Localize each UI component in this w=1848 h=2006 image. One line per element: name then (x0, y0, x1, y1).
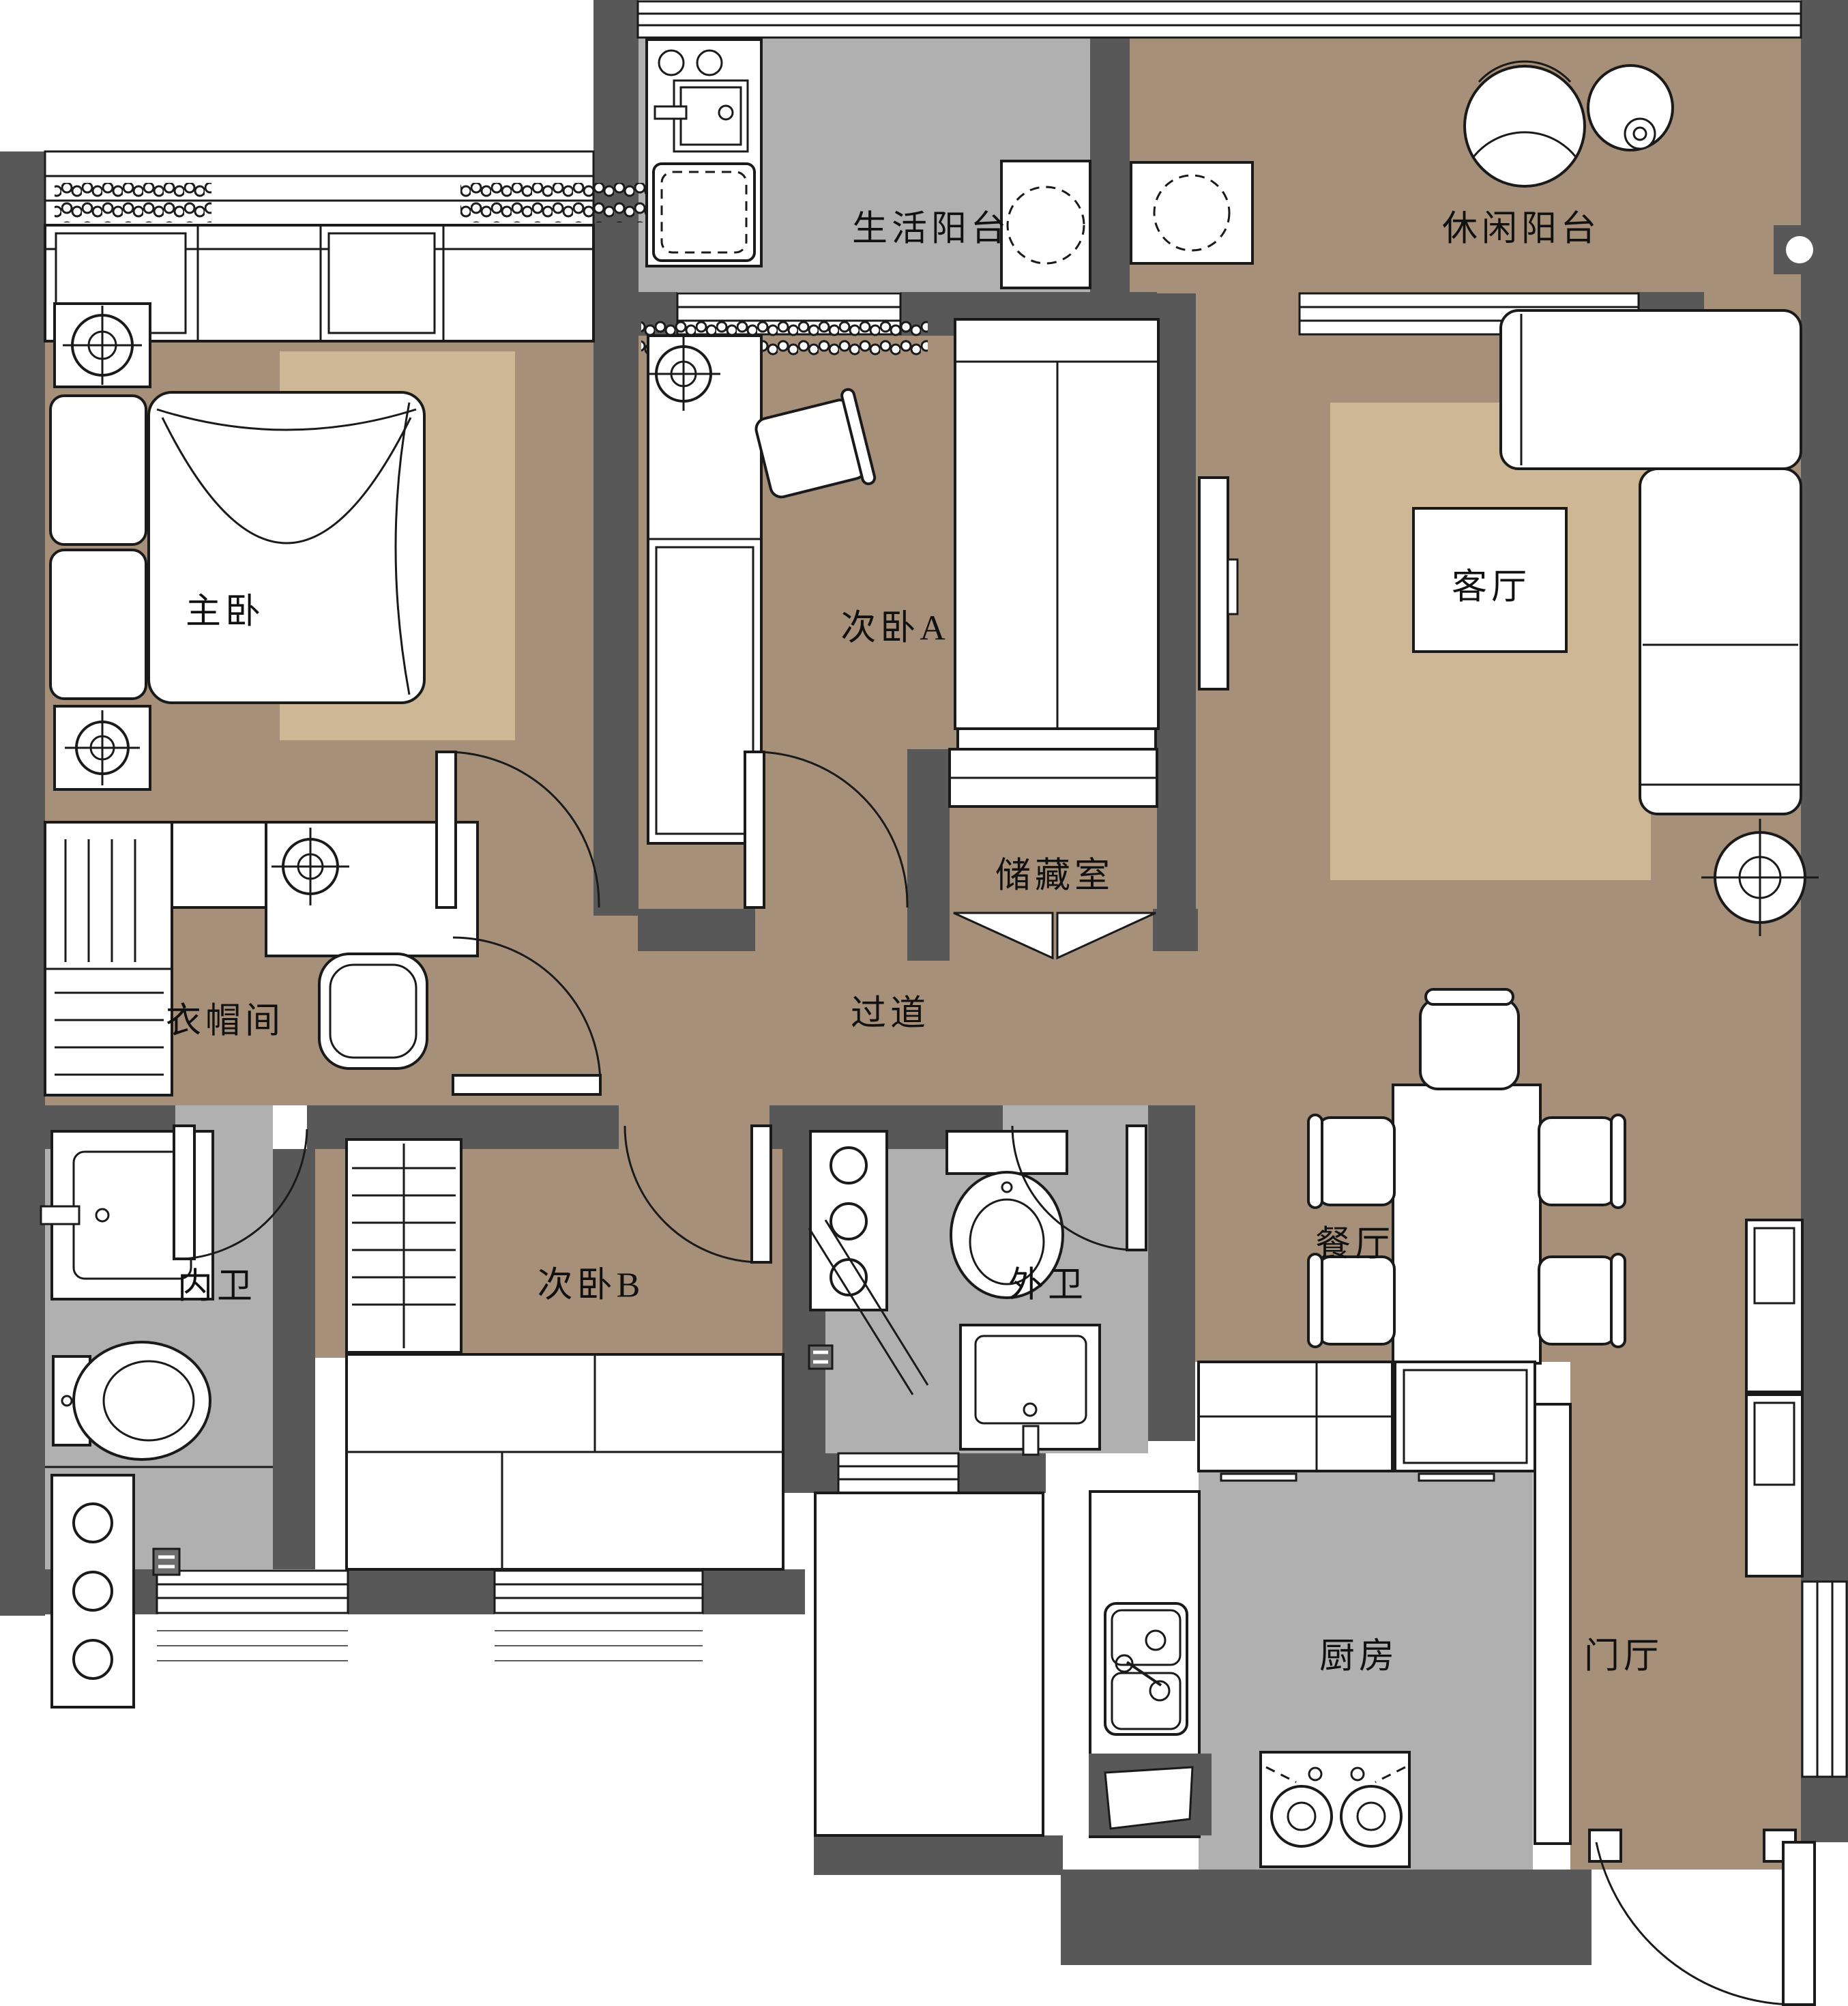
dining-chair (1420, 989, 1519, 1089)
bedroom-b-furniture (347, 1139, 783, 1569)
room-label-living-room: 客厅 (1452, 558, 1531, 609)
cloakroom-furniture (45, 822, 478, 1095)
dining-chair (1539, 1115, 1625, 1208)
master-bedroom-furniture (45, 183, 689, 789)
dining-chair (1539, 1254, 1625, 1347)
bed-master (50, 392, 424, 703)
sliding-panel (1535, 1404, 1570, 1844)
window-balcony-top (638, 1, 1801, 38)
tv-cabinet (1199, 478, 1237, 689)
desk-chair (752, 388, 876, 508)
nightstand (55, 706, 150, 789)
wardrobe-cloakroom (45, 822, 172, 1095)
bed-bedroom-a (955, 319, 1158, 796)
door-cloakroom (453, 937, 600, 1094)
toilet-icon (53, 1342, 210, 1459)
room-label-master-bedroom: 主卧 (186, 583, 265, 634)
bath-cabinet (810, 1131, 887, 1310)
dressing-table (172, 822, 478, 956)
floor-drain-icon (809, 1346, 832, 1369)
room-label-hallway: 过道 (851, 985, 930, 1036)
folding-door-icon (1057, 913, 1156, 958)
window-lightwell (838, 1453, 958, 1493)
wardrobe-bedroom-b (347, 1139, 461, 1352)
radiator-icon (55, 183, 211, 222)
dining-furniture (1308, 989, 1625, 1363)
room-label-outer-bathroom: 外卫 (1008, 1256, 1087, 1307)
door-bedroom-b (625, 1126, 771, 1262)
shoe-cabinet (1746, 1220, 1802, 1576)
floor-drain-icon (153, 1549, 179, 1575)
door-bedroom-a (745, 752, 907, 907)
side-table-icon (1588, 66, 1673, 150)
tatami-bed (347, 1354, 783, 1569)
room-label-kitchen: 厨房 (1319, 1627, 1398, 1678)
room-label-storage: 储藏室 (995, 847, 1114, 898)
kitchen-sink-icon (1105, 1603, 1187, 1734)
inner-bathroom-fixtures (41, 1131, 273, 1707)
ac-unit-icon (1131, 162, 1252, 263)
armchair-icon (1465, 61, 1585, 186)
room-label-cloakroom: 衣帽间 (166, 992, 284, 1043)
kitchen-cabinets (1199, 1362, 1535, 1481)
living-room-furniture (1199, 310, 1819, 936)
room-label-dining-room: 餐厅 (1315, 1215, 1394, 1266)
room-label-entry-hall: 门厅 (1584, 1627, 1663, 1678)
room-label-bedroom-a: 次卧A (840, 599, 950, 650)
floor-plan: 生活阳台 休闲阳台 主卧 次卧A 客厅 储藏室 过道 衣帽间 内卫 次卧B 外卫… (0, 0, 1848, 2006)
nightstand (55, 304, 150, 387)
light-well (815, 1493, 1043, 1835)
washbasin-icon (960, 1325, 1100, 1455)
window-bedroom-b-bottom (495, 1571, 703, 1661)
dining-chair (1308, 1254, 1394, 1347)
washing-machine-icon (1001, 161, 1090, 288)
window-entry-right (1802, 1582, 1847, 1777)
window-bottom-left (157, 1571, 348, 1661)
shower-cabinet (52, 1475, 134, 1707)
dining-chair (1308, 1115, 1394, 1208)
washing-machine-icon (654, 164, 754, 261)
stool (319, 954, 427, 1069)
room-label-leisure-balcony: 休闲阳台 (1442, 200, 1600, 251)
flue-shaft (1089, 1754, 1212, 1835)
entry-door (1589, 1830, 1815, 2005)
room-label-bedroom-b: 次卧B (538, 1256, 645, 1307)
folding-door-icon (954, 913, 1053, 958)
drain-box-icon (1774, 225, 1825, 274)
gas-stove-icon (1261, 1752, 1409, 1867)
room-label-utility-balcony: 生活阳台 (852, 200, 1010, 251)
room-label-inner-bathroom: 内卫 (177, 1258, 256, 1309)
dining-table (1393, 1085, 1540, 1363)
